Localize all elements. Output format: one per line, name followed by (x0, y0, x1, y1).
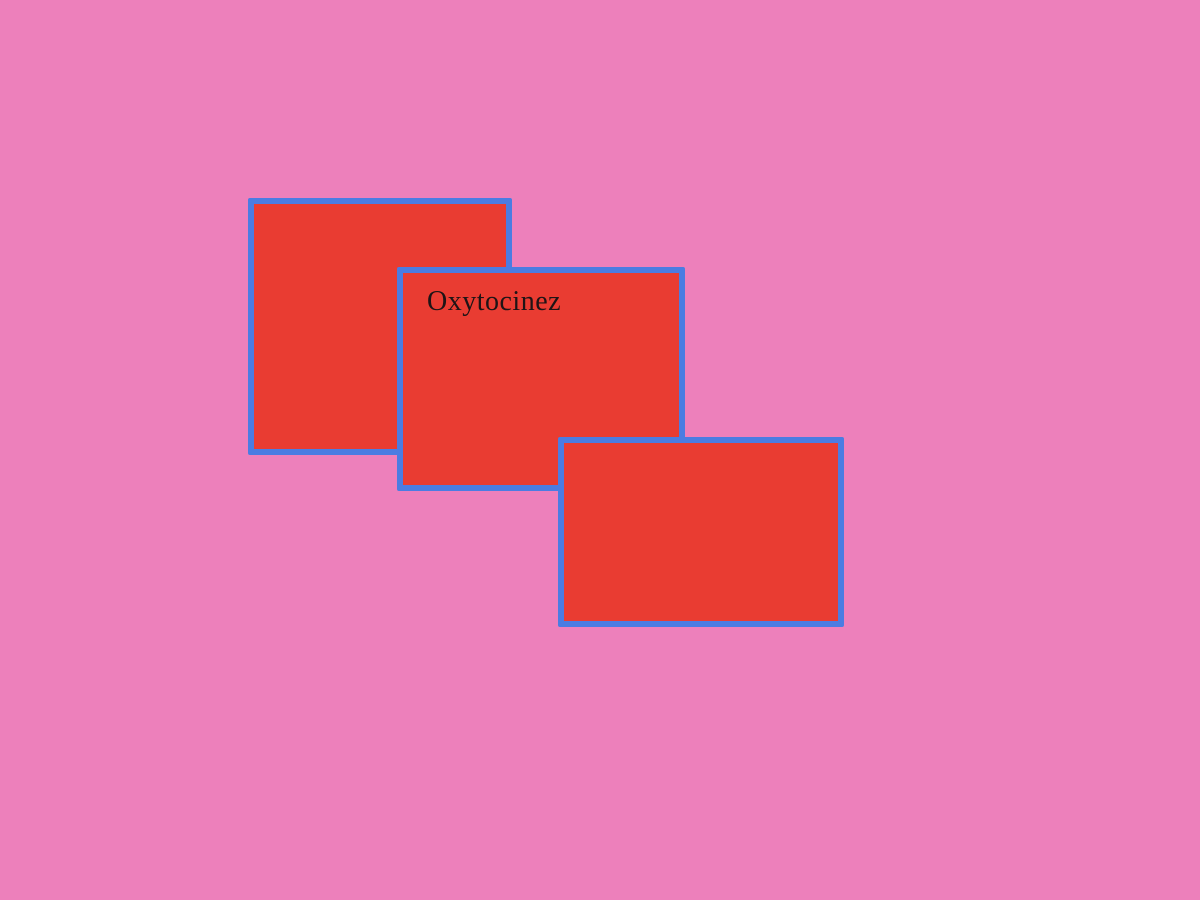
card-label: Oxytocinez (427, 287, 679, 318)
shape-card-front[interactable] (558, 437, 844, 627)
editor-canvas: Oxytocinez (0, 0, 1200, 900)
